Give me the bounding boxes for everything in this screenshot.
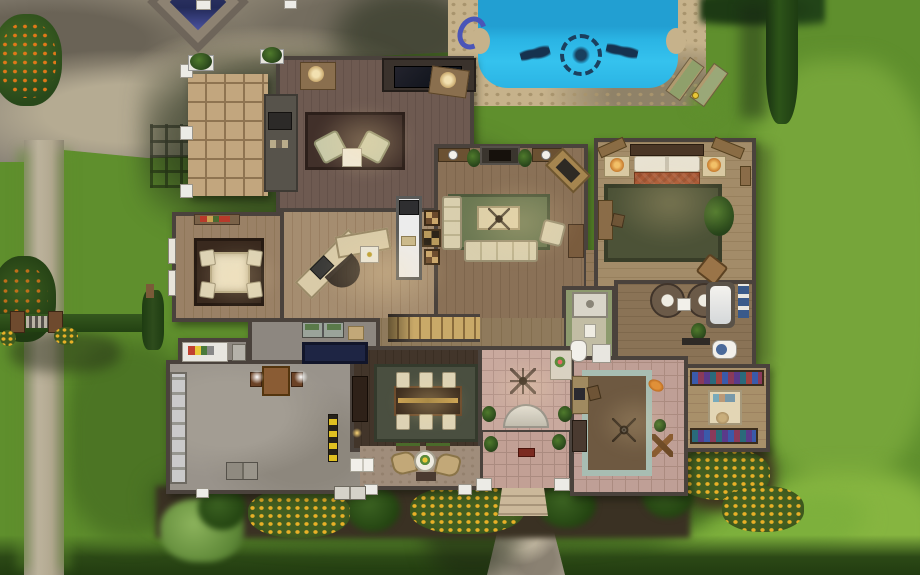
staircase-shadow (388, 314, 414, 342)
porch-topiary-left (484, 436, 498, 452)
nook-window-2 (168, 270, 176, 296)
patio-column-2 (180, 126, 193, 140)
nook-chair-1[interactable] (199, 249, 216, 267)
closet-rack-bottom[interactable] (690, 428, 758, 444)
bath-towel-bar (682, 338, 710, 345)
bed-pillows (634, 156, 700, 172)
family-ceiling-fan (488, 208, 510, 230)
bathtub-inner (710, 286, 731, 324)
entry-topiary-left (482, 406, 496, 422)
entry-ceiling-fan (510, 368, 536, 394)
dining-chair-t3[interactable] (442, 372, 456, 388)
pool-table[interactable] (302, 342, 368, 364)
dining-table-runner (398, 398, 458, 403)
entry-console-flowers (554, 356, 566, 368)
family-desk[interactable] (568, 224, 584, 258)
nook-counter-items (200, 216, 230, 222)
family-sink-left (448, 150, 458, 160)
entry-topiary-right (558, 406, 572, 422)
workbench-items (188, 346, 214, 355)
garage-door[interactable] (170, 372, 187, 484)
utility-compactor[interactable] (232, 344, 246, 361)
porch-post-right (554, 478, 570, 491)
dining-hutch[interactable] (352, 376, 368, 422)
garage-crates (226, 462, 258, 480)
family-plant-right (518, 149, 532, 167)
dining-chair-b2[interactable] (419, 414, 433, 430)
laundry-unit-tops (305, 324, 341, 330)
bedroom2-ceiling-fan (612, 418, 636, 442)
hallbath-toilet[interactable] (570, 340, 587, 362)
patio-planter-bush-2 (262, 47, 282, 63)
sofa-vertical[interactable] (442, 196, 462, 250)
nightstand-lamp-right[interactable] (707, 158, 721, 172)
closet-island-items (713, 394, 735, 402)
window-flowerbox-1 (396, 443, 420, 451)
front-steps[interactable] (498, 488, 548, 516)
outdoor-counter-items (270, 140, 288, 148)
bath-toilet-seat (716, 344, 727, 355)
sims-lot-overhead-view (0, 0, 920, 575)
living-lamp-left[interactable] (308, 66, 324, 82)
bedroom-desk[interactable] (598, 200, 613, 240)
nook-table[interactable] (210, 252, 250, 293)
hallbath-showerhead (586, 300, 594, 308)
window-flowerbox-2 (426, 443, 450, 451)
headboard-books (640, 146, 692, 153)
bedroom2-dresser[interactable] (572, 420, 587, 452)
bedroom2-computer[interactable] (574, 388, 585, 400)
closet-island-hat (716, 412, 729, 424)
family-sink-right (541, 150, 551, 160)
bedroom-plant (704, 196, 734, 236)
dining-chair-b1[interactable] (396, 414, 410, 430)
living-side-table[interactable] (342, 148, 362, 167)
stool-1[interactable] (424, 210, 440, 226)
patio-column-3 (180, 184, 193, 198)
chef-mat-icon (366, 251, 373, 258)
vanity-cabinet (677, 298, 691, 311)
nook-chair-2[interactable] (199, 281, 216, 299)
porch-topiary-right (552, 434, 566, 450)
sofa-horizontal[interactable] (464, 240, 538, 262)
patio-pergola-floor (188, 74, 268, 196)
nook-window-1 (168, 238, 176, 264)
island-stove[interactable] (399, 200, 419, 215)
nook-chair-4[interactable] (246, 281, 263, 299)
bath-towels (738, 284, 749, 318)
garage-chair-right[interactable] (291, 372, 303, 387)
patio-planter-bush-1 (190, 53, 212, 70)
checker-cart[interactable] (422, 229, 441, 247)
bedroom-wallshelf[interactable] (740, 166, 751, 186)
hallbath-hamper[interactable] (592, 344, 611, 363)
dining-chair-b3[interactable] (442, 414, 456, 430)
island-item (401, 236, 416, 246)
dining-chair-t2[interactable] (419, 372, 433, 388)
garage-chair-left[interactable] (250, 372, 262, 387)
ac-units (334, 486, 366, 500)
bedroom2-plant (654, 419, 666, 432)
garage-worktable[interactable] (262, 366, 290, 396)
porch-dark-mat (416, 472, 436, 481)
nook-chair-3[interactable] (246, 249, 263, 267)
caution-ladder[interactable] (328, 414, 338, 462)
nightstand-lamp-left[interactable] (610, 158, 624, 172)
garage-papers (350, 458, 374, 472)
rearporch-post-2 (458, 484, 472, 495)
porch-post-left (476, 478, 492, 491)
closet-rack-top[interactable] (690, 370, 764, 386)
storage-box-tan[interactable] (348, 326, 364, 340)
living-lamp-right[interactable] (440, 72, 456, 88)
family-plant-left (467, 149, 481, 167)
outdoor-grill[interactable] (268, 112, 292, 130)
fireplace-firebox (489, 150, 511, 161)
hallbath-paper (584, 324, 596, 338)
front-doormat (518, 448, 535, 457)
porch-table-flowers (420, 455, 430, 465)
stool-2[interactable] (424, 249, 440, 265)
easel[interactable] (652, 434, 673, 457)
rearporch-post-1 (364, 484, 378, 495)
dining-chair-t1[interactable] (396, 372, 410, 388)
rearporch-post-3 (196, 488, 209, 498)
